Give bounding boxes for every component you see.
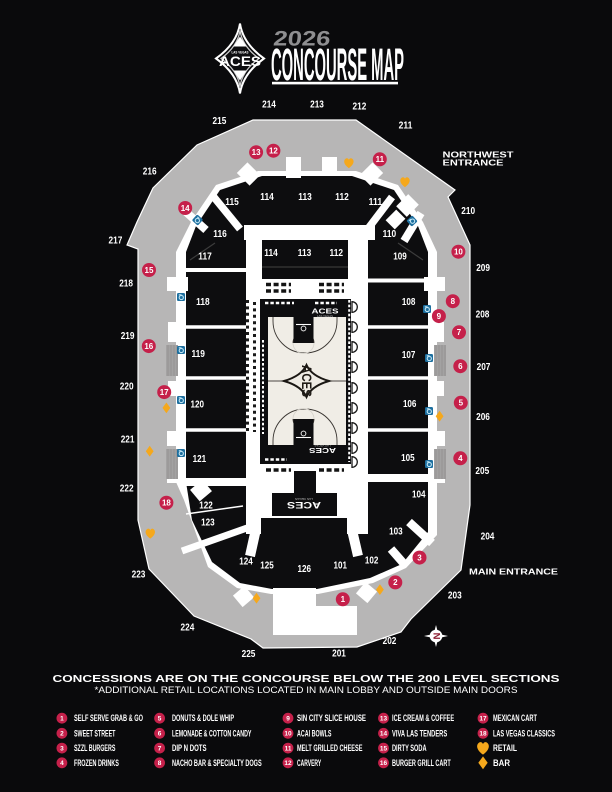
- svg-text:101: 101: [334, 559, 348, 571]
- svg-text:220: 220: [120, 382, 134, 393]
- svg-text:104: 104: [412, 488, 426, 500]
- svg-text:15: 15: [145, 266, 154, 275]
- svg-text:15: 15: [380, 746, 388, 753]
- svg-text:115: 115: [225, 196, 239, 208]
- svg-text:113: 113: [298, 191, 312, 203]
- svg-text:16: 16: [144, 342, 153, 351]
- svg-text:9: 9: [286, 716, 290, 723]
- svg-text:SELF SERVE GRAB & GO: SELF SERVE GRAB & GO: [74, 713, 143, 723]
- svg-text:1: 1: [60, 716, 64, 723]
- svg-text:6: 6: [158, 731, 162, 738]
- svg-text:109: 109: [393, 250, 407, 262]
- svg-text:N: N: [431, 633, 442, 640]
- svg-text:SZZL BURGERS: SZZL BURGERS: [74, 743, 115, 753]
- svg-text:FROZEN DRINKS: FROZEN DRINKS: [74, 758, 119, 768]
- svg-text:7: 7: [158, 746, 162, 753]
- svg-text:221: 221: [121, 435, 135, 446]
- svg-text:MAIN ENTRANCE: MAIN ENTRANCE: [469, 567, 559, 577]
- svg-text:118: 118: [196, 296, 210, 308]
- svg-text:2: 2: [393, 578, 398, 587]
- svg-text:BAR: BAR: [493, 758, 511, 768]
- svg-text:211: 211: [399, 121, 413, 132]
- svg-text:SWEET STREET: SWEET STREET: [74, 728, 116, 738]
- svg-text:3: 3: [417, 553, 422, 562]
- svg-text:222: 222: [120, 484, 134, 495]
- svg-text:17: 17: [479, 716, 487, 723]
- svg-text:LAS VEGAS: LAS VEGAS: [295, 497, 313, 501]
- svg-text:224: 224: [181, 623, 195, 634]
- svg-text:1: 1: [341, 595, 346, 604]
- svg-text:213: 213: [310, 100, 324, 111]
- svg-text:110: 110: [383, 228, 397, 240]
- svg-text:122: 122: [199, 500, 213, 512]
- svg-text:102: 102: [365, 555, 379, 567]
- svg-text:126: 126: [298, 563, 312, 575]
- svg-text:8: 8: [451, 297, 456, 306]
- svg-text:12: 12: [269, 147, 278, 156]
- svg-text:4: 4: [60, 760, 64, 767]
- svg-text:13: 13: [252, 148, 261, 157]
- svg-text:SIN CITY SLICE HOUSE: SIN CITY SLICE HOUSE: [297, 713, 366, 723]
- svg-text:217: 217: [109, 235, 123, 246]
- svg-text:113: 113: [298, 247, 312, 259]
- svg-text:223: 223: [132, 570, 146, 581]
- svg-text:CARVERY: CARVERY: [297, 758, 321, 768]
- svg-text:17: 17: [160, 388, 169, 397]
- svg-text:5: 5: [459, 399, 464, 408]
- svg-text:209: 209: [476, 263, 490, 274]
- svg-text:VIVA LAS TENDERS: VIVA LAS TENDERS: [392, 728, 447, 738]
- svg-text:16: 16: [380, 760, 388, 767]
- svg-text:124: 124: [239, 555, 253, 567]
- svg-text:ENTRANCE: ENTRANCE: [443, 159, 505, 168]
- svg-text:105: 105: [401, 452, 415, 464]
- svg-text:112: 112: [330, 247, 344, 259]
- svg-text:212: 212: [353, 102, 367, 113]
- svg-text:DIP N DOTS: DIP N DOTS: [172, 743, 207, 753]
- svg-text:125: 125: [260, 559, 274, 571]
- svg-text:10: 10: [454, 248, 463, 257]
- svg-text:103: 103: [389, 525, 403, 537]
- svg-text:10: 10: [284, 731, 292, 738]
- svg-text:203: 203: [448, 591, 462, 602]
- svg-text:NACHO BAR & SPECIALTY DOGS: NACHO BAR & SPECIALTY DOGS: [172, 758, 262, 768]
- svg-text:2: 2: [60, 731, 64, 738]
- svg-text:ACAI BOWLS: ACAI BOWLS: [297, 728, 332, 738]
- svg-text:8: 8: [158, 760, 162, 767]
- svg-text:RETAIL: RETAIL: [493, 743, 517, 753]
- svg-text:202: 202: [383, 636, 397, 647]
- svg-text:12: 12: [284, 760, 292, 767]
- svg-text:18: 18: [162, 499, 171, 508]
- svg-text:207: 207: [477, 362, 491, 373]
- svg-text:106: 106: [403, 398, 417, 410]
- svg-text:14: 14: [181, 204, 190, 213]
- svg-text:219: 219: [121, 331, 135, 342]
- svg-text:112: 112: [335, 191, 349, 203]
- svg-text:117: 117: [198, 250, 212, 262]
- svg-text:9: 9: [437, 312, 442, 321]
- svg-text:14: 14: [380, 731, 388, 738]
- svg-text:206: 206: [476, 412, 490, 423]
- svg-text:123: 123: [201, 517, 215, 529]
- svg-text:225: 225: [242, 649, 256, 660]
- svg-text:205: 205: [475, 466, 489, 477]
- svg-text:DONUTS & DOLE WHIP: DONUTS & DOLE WHIP: [172, 713, 234, 723]
- svg-text:108: 108: [402, 296, 416, 308]
- svg-text:119: 119: [191, 348, 205, 360]
- svg-text:210: 210: [461, 206, 475, 217]
- svg-text:4: 4: [458, 454, 463, 463]
- svg-text:CONCESSIONS ARE ON THE CONCOUR: CONCESSIONS ARE ON THE CONCOURSE BELOW T…: [53, 673, 560, 685]
- svg-text:201: 201: [332, 649, 346, 660]
- svg-text:BURGER GRILL CART: BURGER GRILL CART: [392, 758, 451, 768]
- svg-text:208: 208: [476, 310, 490, 321]
- svg-text:11: 11: [376, 155, 385, 164]
- svg-text:ACES: ACES: [299, 365, 314, 397]
- svg-text:114: 114: [260, 191, 274, 203]
- svg-text:216: 216: [143, 166, 157, 177]
- svg-text:111: 111: [369, 196, 383, 208]
- svg-text:120: 120: [191, 398, 205, 410]
- svg-text:13: 13: [380, 716, 388, 723]
- svg-text:204: 204: [481, 531, 495, 542]
- svg-text:107: 107: [402, 349, 416, 361]
- svg-text:ICE CREAM & COFFEE: ICE CREAM & COFFEE: [392, 713, 454, 723]
- svg-text:114: 114: [264, 247, 278, 259]
- svg-text:215: 215: [213, 116, 227, 127]
- svg-text:MEXICAN CART: MEXICAN CART: [493, 713, 537, 723]
- svg-text:218: 218: [119, 279, 133, 290]
- svg-text:3: 3: [60, 746, 64, 753]
- svg-text:LEMONADE & COTTON CANDY: LEMONADE & COTTON CANDY: [172, 728, 251, 738]
- svg-text:7: 7: [457, 328, 462, 337]
- svg-text:5: 5: [158, 716, 162, 723]
- svg-text:11: 11: [285, 746, 292, 753]
- svg-text:DIRTY SODA: DIRTY SODA: [392, 743, 427, 753]
- svg-text:*ADDITIONAL RETAIL LOCATIONS L: *ADDITIONAL RETAIL LOCATIONS LOCATED IN …: [95, 685, 518, 695]
- svg-text:116: 116: [213, 228, 227, 240]
- svg-text:MELT GRILLED CHEESE: MELT GRILLED CHEESE: [297, 743, 363, 753]
- svg-text:18: 18: [479, 731, 487, 738]
- svg-text:214: 214: [262, 100, 276, 111]
- svg-text:ACES: ACES: [219, 53, 261, 69]
- svg-text:6: 6: [458, 362, 463, 371]
- svg-text:LAS VEGAS CLASSICS: LAS VEGAS CLASSICS: [493, 728, 555, 738]
- svg-text:121: 121: [193, 453, 207, 465]
